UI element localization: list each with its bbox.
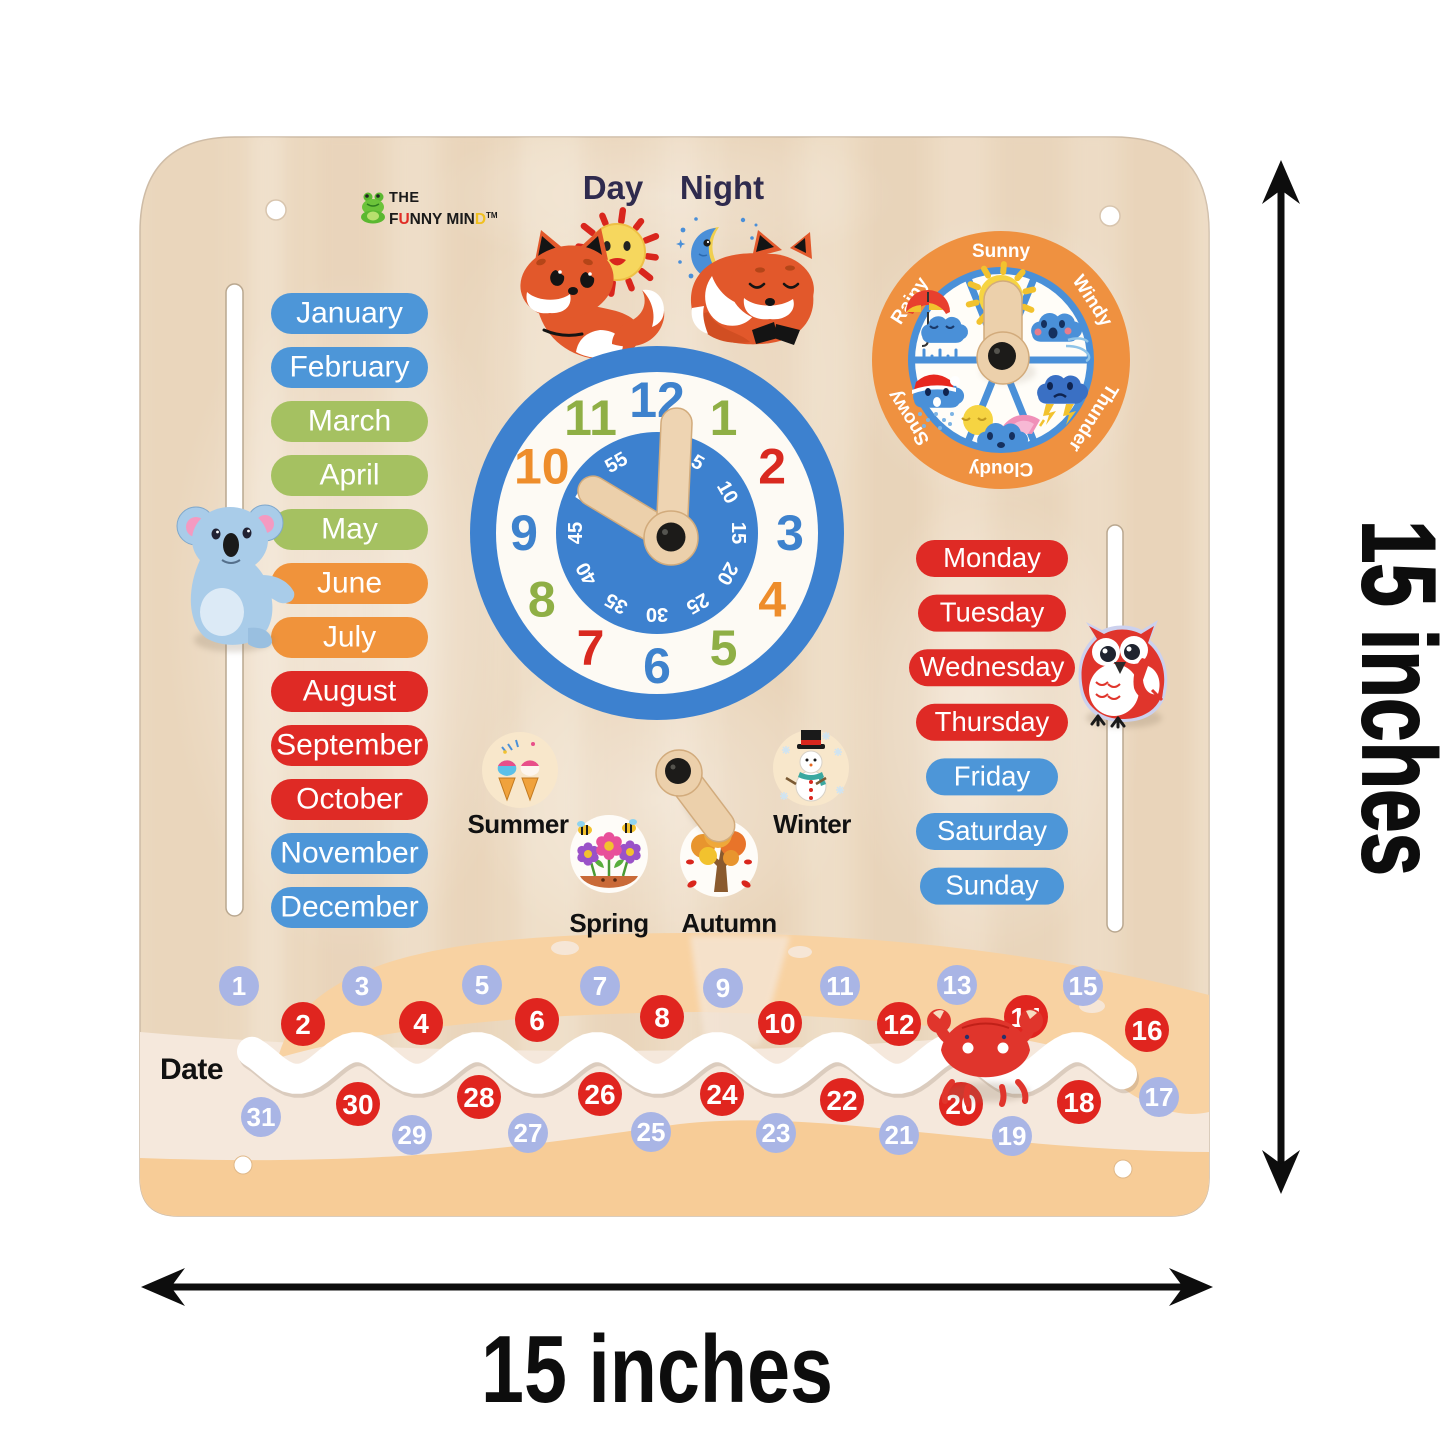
svg-text:Date: Date	[160, 1053, 223, 1086]
svg-text:November: November	[280, 837, 418, 870]
svg-text:September: September	[276, 729, 423, 762]
svg-text:9: 9	[510, 505, 538, 561]
svg-text:3: 3	[355, 971, 369, 1001]
svg-text:8: 8	[654, 1002, 670, 1033]
svg-text:Wednesday: Wednesday	[920, 651, 1065, 682]
svg-text:45: 45	[565, 522, 587, 544]
svg-text:28: 28	[463, 1082, 494, 1113]
svg-text:Saturday: Saturday	[937, 815, 1047, 846]
svg-text:10: 10	[764, 1008, 795, 1039]
svg-text:February: February	[289, 351, 409, 384]
svg-text:19: 19	[998, 1121, 1027, 1151]
svg-text:Summer: Summer	[467, 809, 568, 839]
svg-text:April: April	[319, 459, 379, 492]
svg-text:May: May	[321, 513, 378, 546]
svg-text:5: 5	[710, 620, 738, 676]
svg-text:30: 30	[342, 1089, 373, 1120]
svg-text:15 inches: 15 inches	[1340, 520, 1445, 876]
svg-text:Friday: Friday	[954, 760, 1031, 791]
svg-text:15: 15	[1069, 971, 1098, 1001]
svg-text:Thursday: Thursday	[935, 706, 1050, 737]
svg-text:March: March	[308, 405, 391, 438]
svg-text:Cloudy: Cloudy	[968, 458, 1033, 479]
svg-text:9: 9	[716, 973, 730, 1003]
svg-text:15 inches: 15 inches	[481, 1316, 833, 1423]
svg-text:4: 4	[758, 572, 786, 628]
svg-text:30: 30	[646, 603, 668, 625]
svg-text:7: 7	[577, 620, 605, 676]
svg-text:6: 6	[529, 1005, 545, 1036]
svg-text:16: 16	[1131, 1015, 1162, 1046]
svg-text:4: 4	[413, 1008, 429, 1039]
svg-text:1: 1	[232, 971, 246, 1001]
svg-text:October: October	[296, 783, 403, 816]
svg-text:Winter: Winter	[773, 809, 851, 839]
svg-text:August: August	[303, 675, 397, 708]
svg-text:15: 15	[727, 522, 749, 544]
svg-text:Sunday: Sunday	[945, 870, 1039, 901]
svg-text:21: 21	[885, 1120, 914, 1150]
svg-text:Tuesday: Tuesday	[940, 597, 1045, 628]
svg-text:January: January	[296, 297, 403, 330]
svg-text:25: 25	[637, 1117, 666, 1147]
svg-text:26: 26	[584, 1079, 615, 1110]
svg-text:1: 1	[710, 390, 738, 446]
svg-text:11: 11	[564, 390, 617, 446]
svg-text:6: 6	[643, 638, 671, 694]
svg-text:13: 13	[943, 970, 972, 1000]
svg-text:THE: THE	[389, 190, 420, 206]
svg-text:29: 29	[398, 1120, 427, 1150]
svg-text:7: 7	[593, 971, 607, 1001]
svg-text:11: 11	[826, 971, 854, 1001]
svg-text:18: 18	[1063, 1087, 1094, 1118]
svg-text:2: 2	[758, 439, 786, 495]
svg-text:Spring: Spring	[569, 908, 648, 938]
svg-text:December: December	[280, 891, 418, 924]
svg-text:5: 5	[475, 970, 489, 1000]
svg-text:31: 31	[247, 1102, 276, 1132]
svg-text:17: 17	[1145, 1082, 1174, 1112]
svg-text:Monday: Monday	[943, 542, 1041, 573]
svg-text:FUNNY MINDTM: FUNNY MINDTM	[389, 211, 498, 228]
svg-text:27: 27	[514, 1118, 543, 1148]
svg-text:June: June	[317, 567, 382, 600]
svg-text:8: 8	[528, 572, 556, 628]
svg-text:Night: Night	[680, 169, 764, 206]
svg-text:Sunny: Sunny	[972, 241, 1030, 262]
svg-text:22: 22	[826, 1085, 857, 1116]
svg-text:3: 3	[776, 505, 804, 561]
svg-text:12: 12	[883, 1009, 914, 1040]
svg-text:Day: Day	[583, 169, 644, 206]
svg-text:24: 24	[706, 1079, 738, 1110]
svg-text:10: 10	[514, 439, 570, 495]
svg-text:2: 2	[295, 1009, 311, 1040]
svg-text:Autumn: Autumn	[681, 908, 776, 938]
svg-text:23: 23	[762, 1118, 791, 1148]
svg-text:July: July	[323, 621, 376, 654]
